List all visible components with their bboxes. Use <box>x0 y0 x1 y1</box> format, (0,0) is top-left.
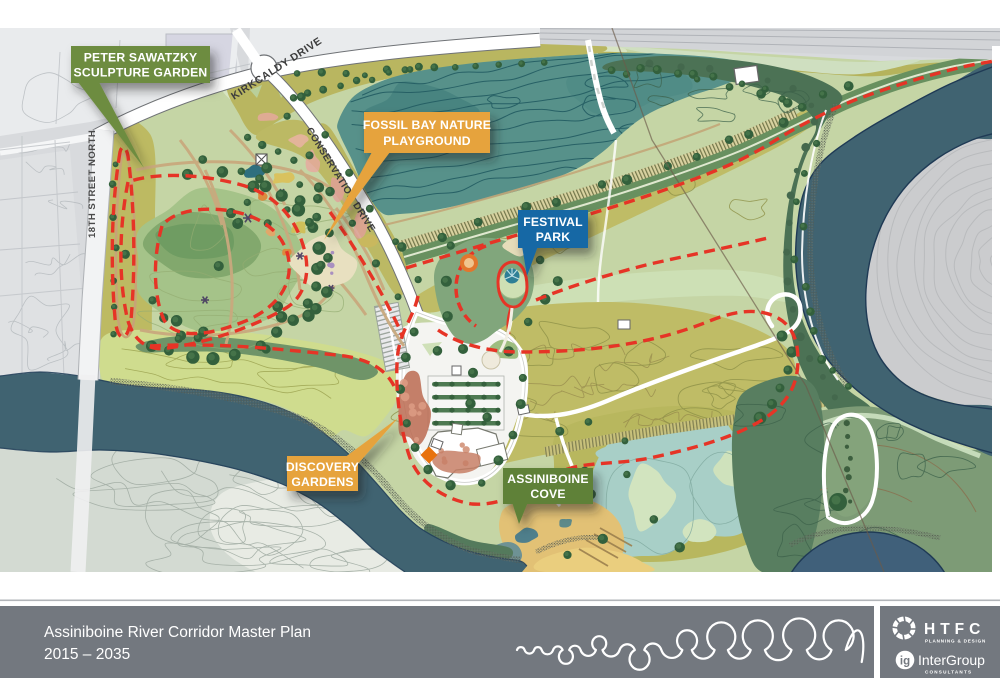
svg-text:FOSSIL BAY NATURE: FOSSIL BAY NATURE <box>363 118 491 132</box>
svg-text:PLAYGROUND: PLAYGROUND <box>383 134 471 148</box>
svg-text:CONSULTANTS: CONSULTANTS <box>925 670 972 675</box>
svg-text:FESTIVAL: FESTIVAL <box>523 215 583 229</box>
svg-text:PARK: PARK <box>536 230 570 244</box>
svg-text:2015 – 2035: 2015 – 2035 <box>44 646 130 663</box>
svg-text:SCULPTURE GARDEN: SCULPTURE GARDEN <box>74 66 208 80</box>
svg-text:HTFC: HTFC <box>924 621 985 638</box>
svg-text:PETER SAWATZKY: PETER SAWATZKY <box>84 51 198 65</box>
svg-text:18TH STREET NORTH: 18TH STREET NORTH <box>87 130 98 238</box>
svg-text:DISCOVERY: DISCOVERY <box>286 460 359 474</box>
svg-text:ASSINIBOINE: ASSINIBOINE <box>507 472 588 486</box>
svg-text:Assiniboine River Corridor Mas: Assiniboine River Corridor Master Plan <box>44 624 311 641</box>
svg-text:ig: ig <box>900 656 910 668</box>
svg-text:PLANNING & DESIGN: PLANNING & DESIGN <box>925 639 986 644</box>
svg-text:GARDENS: GARDENS <box>291 475 353 489</box>
svg-text:InterGroup: InterGroup <box>918 652 985 668</box>
svg-text:COVE: COVE <box>530 487 565 501</box>
